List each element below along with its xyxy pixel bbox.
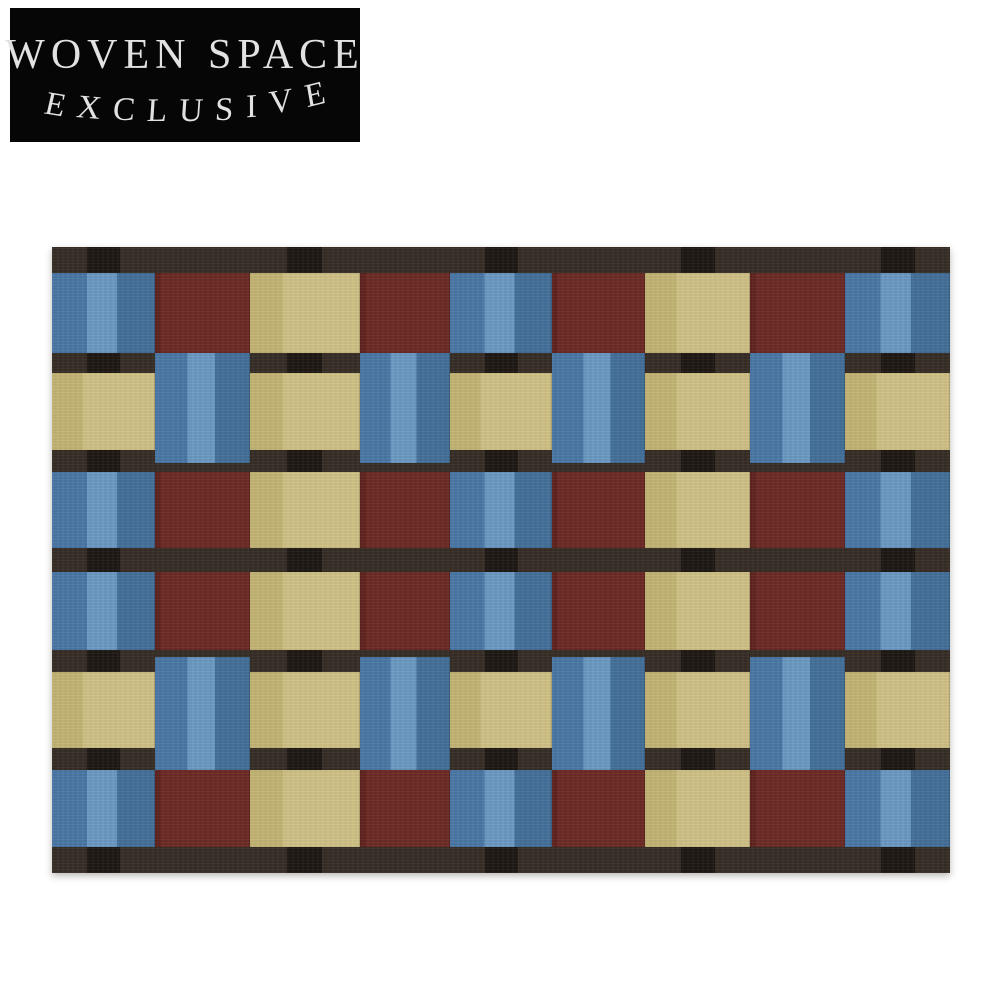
badge-letter: E [42,87,69,122]
rug-warp-strip [681,847,715,873]
rug-cell [250,273,360,353]
badge-letter: C [112,93,137,126]
rug-cell [250,373,360,450]
rug-warp-strip [87,847,120,873]
rug-warp-strip [485,548,518,572]
rug-cell-blue-overlay [155,353,250,463]
rug-warp-strip [681,247,715,273]
rug-cell [450,472,552,548]
rug-warp-strip [485,748,518,770]
rug-cell [645,572,750,650]
rug-cell [360,572,450,650]
badge-letter: E [302,76,327,113]
rug-cell [52,672,155,748]
rug-warp-strip [485,450,518,472]
exclusive-badge: WOVEN SPACE EXCLUSIVE [10,8,360,142]
rug-cell [155,273,250,353]
badge-letter: X [75,91,104,126]
rug-cell [845,572,950,650]
rug-cell [750,273,845,353]
rug-cell [52,770,155,847]
badge-letter: U [178,95,204,128]
rug-warp-strip [881,450,915,472]
rug-cell [645,273,750,353]
rug-cell [52,273,155,353]
rug-cell-blue-overlay [552,353,645,463]
rug-cell-blue-overlay [155,657,250,770]
rug-warp-strip [287,353,322,373]
rug-warp-strip [881,247,915,273]
rug-cell [360,472,450,548]
rug-cell [360,770,450,847]
rug-cell-blue-overlay [360,353,450,463]
rug-cell [52,572,155,650]
rug-cell [155,770,250,847]
rug-cell [450,273,552,353]
rug-cell [845,672,950,748]
badge-letter: L [146,95,168,128]
rug-warp-strip [485,847,518,873]
rug-cell-blue-overlay [360,657,450,770]
rug-cell [360,273,450,353]
rug-cell [250,672,360,748]
rug-cell [450,373,552,450]
rug-cell [645,672,750,748]
badge-letter: V [267,84,293,121]
rug-cell [155,572,250,650]
rug-cell [250,572,360,650]
rug-cell [450,672,552,748]
rug-cell [250,770,360,847]
rug-cell [52,373,155,450]
rug-warp-strip [287,650,322,672]
rug-warp-strip [681,548,715,572]
rug-warp-strip [87,650,120,672]
rug-warp-strip [87,450,120,472]
rug-cell [845,472,950,548]
badge-brand-text: WOVEN SPACE [5,34,365,76]
rug-warp-strip [287,847,322,873]
rug-warp-strip [485,650,518,672]
rug-warp-strip [881,650,915,672]
rug-warp-strip [87,548,120,572]
rug-cell [552,472,645,548]
rug-cell [845,770,950,847]
rug-cell [845,273,950,353]
rug-cell [155,472,250,548]
rug-cell [450,572,552,650]
rug-cell [750,572,845,650]
rug-warp-strip [681,450,715,472]
rug-warp-strip [87,748,120,770]
rug-warp-strip [87,353,120,373]
rug-cell-blue-overlay [750,657,845,770]
rug-warp-strip [287,548,322,572]
product-image-canvas: WOVEN SPACE EXCLUSIVE [0,0,1000,1000]
badge-letter: S [214,93,234,126]
rug-cell [450,770,552,847]
rug-warp-strip [287,748,322,770]
rug-cell [750,770,845,847]
rug-cell [845,373,950,450]
rug-cell-blue-overlay [750,353,845,463]
rug-cell [52,472,155,548]
rug-cell [552,273,645,353]
rug-warp-strip [485,247,518,273]
rug-cell [645,373,750,450]
rug-cell [250,472,360,548]
rug-warp-strip [287,450,322,472]
rug-cell [645,472,750,548]
rug-cell [552,770,645,847]
rug-cell-blue-overlay [552,657,645,770]
badge-letter: I [246,90,257,124]
rug-warp-strip [485,353,518,373]
rug-cell [552,572,645,650]
rug-product-photo [52,247,950,873]
rug-warp-strip [681,650,715,672]
rug-warp-strip [287,247,322,273]
rug-cell [645,770,750,847]
rug-cell [750,472,845,548]
rug-warp-strip [881,548,915,572]
rug-warp-strip [881,353,915,373]
rug-warp-strip [87,247,120,273]
rug-warp-strip [681,353,715,373]
badge-exclusive-text: EXCLUSIVE [39,86,330,119]
rug-warp-strip [881,847,915,873]
rug-warp-strip [681,748,715,770]
rug-warp-strip [881,748,915,770]
